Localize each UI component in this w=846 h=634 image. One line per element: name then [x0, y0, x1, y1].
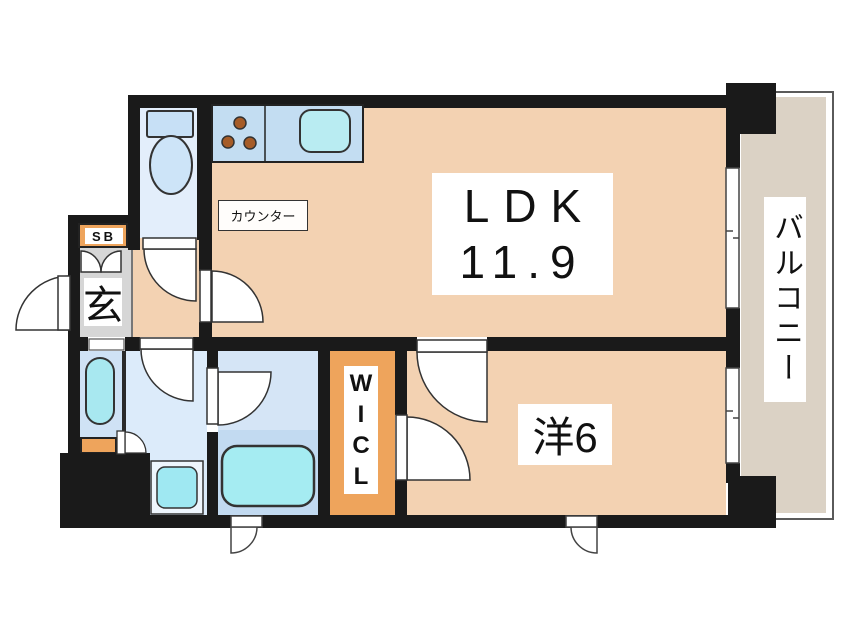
wall-laundry-washroom [122, 351, 126, 437]
floor-plan: LDK 11.9 洋6 W I C L バルコニー カウンター SB 玄 [0, 0, 846, 634]
wall-left-upper [128, 95, 140, 250]
shoe-box-label: SB [85, 228, 123, 244]
wall-bottom [60, 515, 776, 528]
entrance-text: 玄 [83, 273, 123, 331]
entrance-door-swing-icon [16, 276, 70, 330]
hallway-floor [133, 248, 199, 337]
balcony-text: バルコニー [763, 212, 807, 387]
entrance-label: 玄 [84, 278, 122, 326]
wall-top [128, 95, 726, 108]
wicl-label: W I C L [344, 366, 378, 494]
wicl-letter: L [354, 461, 369, 492]
wall-wicl-western-b [395, 480, 407, 515]
wall-wicl-western-a [395, 351, 407, 415]
pillar-bottom-right [728, 476, 776, 527]
bathroom-lower-floor [218, 430, 318, 515]
toilet-room-floor [140, 108, 197, 238]
pillar-top-right [726, 83, 776, 134]
wicl-letter: C [352, 430, 369, 461]
wall-washroom-bath-b [207, 432, 218, 515]
laundry-sliding-door-icon [89, 339, 124, 350]
western-room-label: 洋6 [518, 404, 612, 465]
wall-right-3 [726, 351, 740, 368]
wall-mid-a [68, 337, 88, 351]
wall-mid-b [125, 337, 140, 351]
wall-right-1 [726, 134, 740, 168]
ldk-size-text: 11.9 [459, 234, 585, 290]
wall-right-2 [726, 308, 740, 351]
wall-toilet-right [197, 95, 212, 240]
wall-mid-c [193, 337, 417, 351]
wall-washroom-bath-a [207, 351, 218, 368]
wall-corner-mass [60, 453, 150, 515]
kitchen-counter-label: カウンター [218, 200, 308, 231]
laundry-closet-floor [80, 351, 122, 437]
balcony-label: バルコニー [764, 197, 806, 402]
wall-strip-left-lower [68, 437, 80, 454]
counter-text: カウンター [230, 206, 295, 225]
entrance-step-line [131, 248, 133, 337]
ldk-name-text: LDK [450, 178, 595, 234]
wall-mid-d [487, 337, 726, 351]
shoe-box: SB [78, 223, 128, 248]
ldk-room-label: LDK 11.9 [432, 173, 613, 295]
storage-strip [80, 437, 117, 454]
wicl-letter: I [358, 399, 365, 430]
wall-hall-right-a [199, 240, 212, 271]
wall-bath-wicl [318, 351, 330, 515]
wicl-letter: W [350, 368, 373, 399]
western-room-text: 洋6 [532, 404, 597, 465]
wall-entry-left [68, 215, 80, 437]
